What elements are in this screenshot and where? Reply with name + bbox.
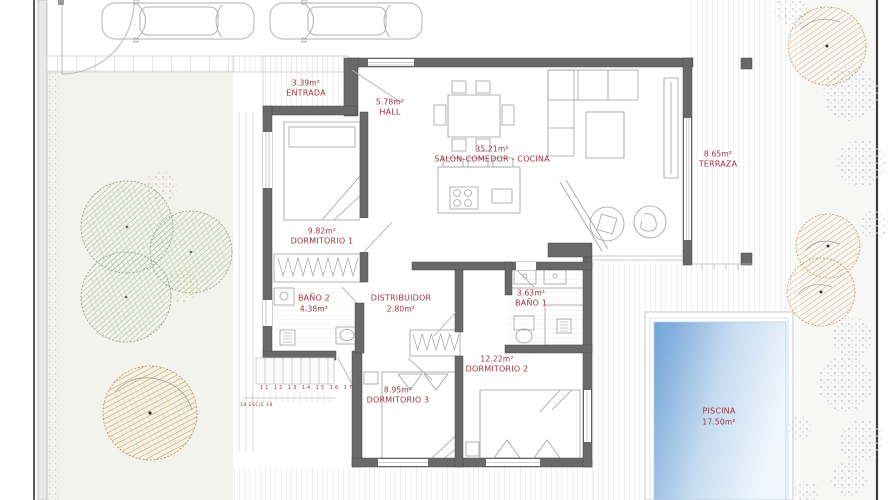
room-area: 8.65m²	[699, 150, 738, 160]
room-area: 2.80m²	[371, 304, 432, 314]
room-label-bano1: 3.63m² BAÑO 1	[515, 289, 547, 310]
room-area: 4.38m²	[298, 304, 330, 314]
room-area: 9.82m²	[291, 227, 354, 237]
room-name: DORMITORIO 2	[466, 365, 529, 376]
room-label-terraza: 8.65m² TERRAZA	[699, 150, 738, 171]
room-name: DISTRIBUIDOR	[371, 294, 432, 305]
car-1	[102, 0, 254, 42]
room-area: 8.95m²	[367, 386, 430, 396]
stair-note: 18 ESC/E 18	[240, 404, 273, 409]
floor-plan-canvas: 3.39m² ENTRADA 5.78m² HALL 35.21m² SALÓN…	[0, 0, 890, 500]
room-area: 35.21m²	[434, 145, 550, 155]
room-label-hall: 5.78m² HALL	[376, 98, 404, 119]
room-label-dormitorio3: 8.95m² DORMITORIO 3	[367, 386, 430, 407]
room-area: 17.50m²	[702, 417, 735, 427]
room-name: HALL	[376, 108, 404, 119]
room-area: 3.39m²	[286, 79, 326, 89]
room-name: DORMITORIO 3	[367, 396, 430, 407]
car-2	[270, 0, 422, 42]
room-name: BAÑO 1	[515, 299, 547, 310]
room-name: ENTRADA	[286, 89, 326, 100]
room-area: 3.63m²	[515, 289, 547, 299]
room-label-salon: 35.21m² SALÓN-COMEDOR - COCINA	[434, 145, 550, 166]
room-label-dormitorio2: 12.22m² DORMITORIO 2	[466, 355, 529, 376]
room-name: DORMITORIO 1	[291, 237, 354, 248]
room-label-distribuidor: DISTRIBUIDOR 2.80m²	[371, 294, 432, 315]
exterior-stairs	[242, 358, 336, 402]
room-label-entrada: 3.39m² ENTRADA	[286, 79, 326, 100]
room-name: PISCINA	[702, 407, 735, 418]
room-name: BAÑO 2	[298, 294, 330, 305]
stair-step-numbers: 11 12 13 14 15 16 17	[260, 386, 354, 391]
room-label-piscina: PISCINA 17.50m²	[702, 407, 735, 428]
tree-orange	[103, 366, 197, 460]
room-label-dormitorio1: 9.82m² DORMITORIO 1	[291, 227, 354, 248]
room-name: TERRAZA	[699, 160, 738, 171]
room-area: 12.22m²	[466, 355, 529, 365]
room-area: 5.78m²	[376, 98, 404, 108]
driveway-paving	[47, 56, 348, 72]
room-label-bano2: BAÑO 2 4.38m²	[298, 294, 330, 315]
car-outlines	[102, 0, 422, 42]
room-name: SALÓN-COMEDOR - COCINA	[434, 155, 550, 166]
floorplan-linework	[0, 0, 890, 500]
